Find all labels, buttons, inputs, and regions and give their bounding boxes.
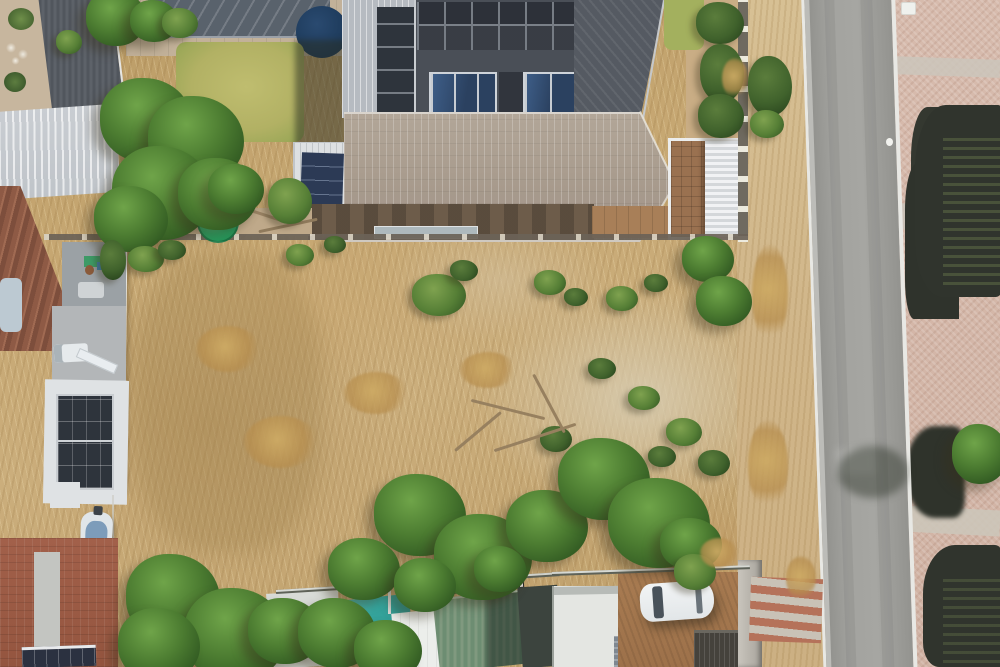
dry-shrub (244, 416, 318, 468)
vegetation-layer (0, 0, 1000, 667)
dark-bush (696, 2, 744, 44)
dark-bush (324, 236, 346, 253)
dark-bush (698, 94, 744, 138)
dark-bush (158, 240, 186, 260)
dry-shrub (700, 538, 738, 568)
dead-branch (454, 411, 502, 452)
bush (534, 270, 566, 295)
aerial-drone-photo (0, 0, 1000, 667)
dark-bush (648, 446, 676, 467)
bush (666, 418, 702, 446)
tree (474, 546, 526, 592)
tree (696, 276, 752, 326)
tree (952, 424, 1000, 484)
bush (56, 30, 82, 54)
dead-branch (471, 399, 545, 420)
tree (682, 236, 734, 282)
bush (162, 8, 198, 38)
dead-branch (532, 374, 566, 434)
dry-shrub (722, 58, 748, 98)
dark-bush (450, 260, 478, 281)
dark-bush (564, 288, 588, 306)
bush (606, 286, 638, 311)
dry-shrub (786, 556, 816, 600)
tree (208, 164, 264, 214)
dry-shrub (344, 372, 408, 414)
dark-bush (748, 56, 792, 116)
bush (268, 178, 312, 224)
bush (628, 386, 660, 410)
dark-bush (100, 240, 126, 280)
dry-shrub (748, 420, 788, 510)
dry-shrub (196, 326, 260, 372)
dark-bush (698, 450, 730, 476)
tree (354, 620, 422, 667)
dark-bush (588, 358, 616, 379)
bush (750, 110, 784, 138)
bush (286, 244, 314, 266)
tree (394, 558, 456, 612)
dark-bush (644, 274, 668, 292)
tree (328, 538, 400, 600)
dry-shrub (752, 244, 788, 344)
dry-shrub (460, 352, 516, 388)
